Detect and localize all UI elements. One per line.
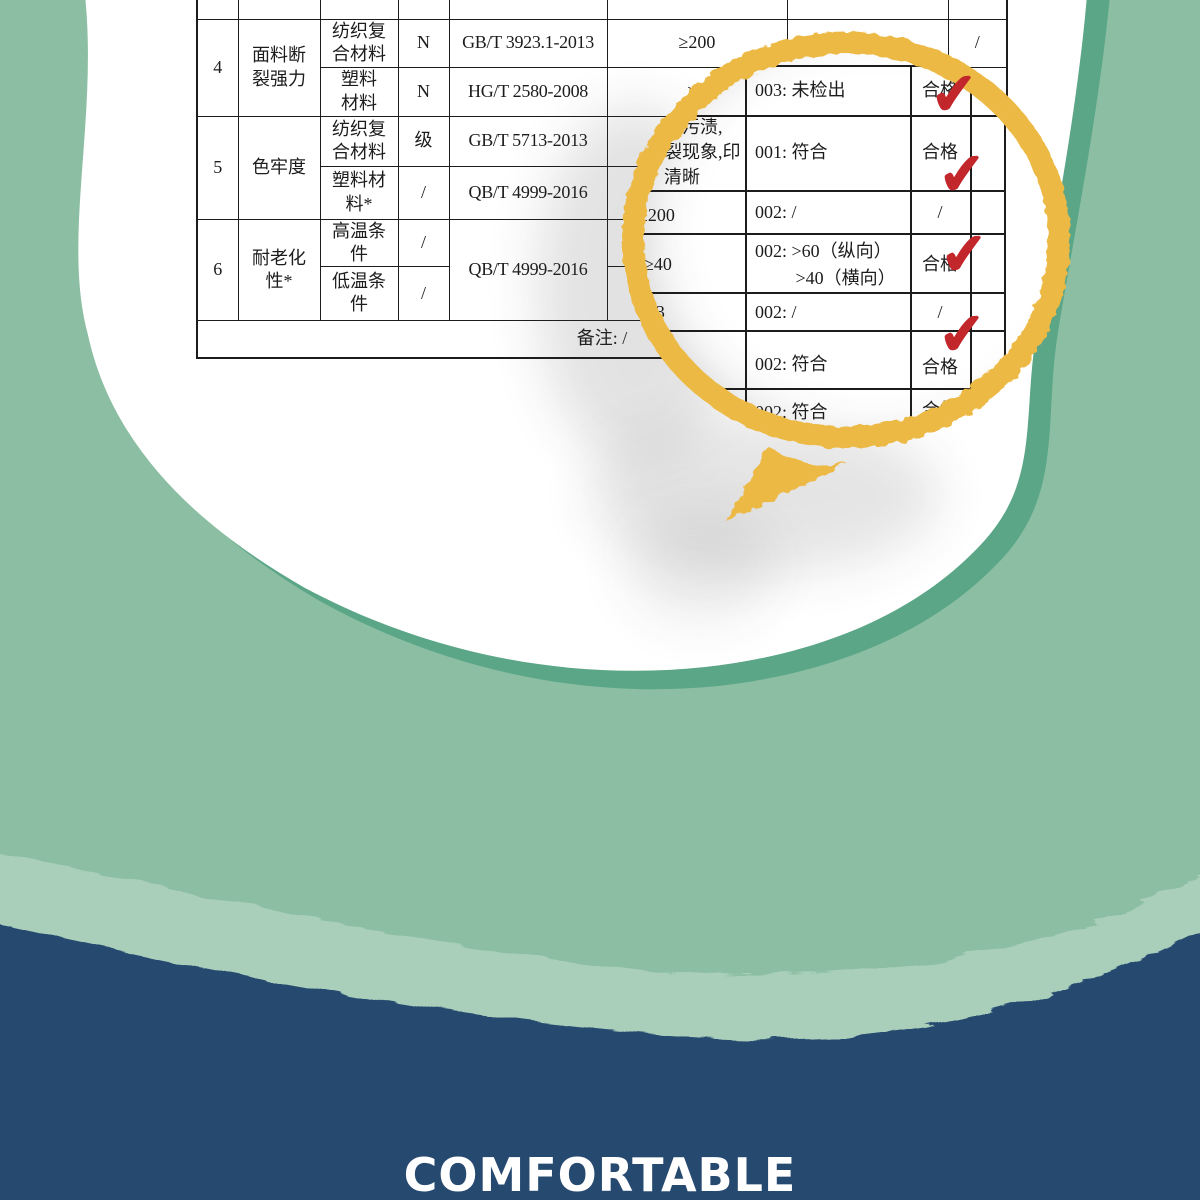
- zoom-cell-result: 002: 符合: [755, 352, 920, 377]
- zoom-cell-requirement: 或水: [686, 395, 722, 420]
- cell-index: 6: [197, 219, 238, 320]
- cell-requirement-partial: 花清晰: [607, 0, 787, 19]
- promo-canvas: 花清晰 4 面料断 裂强力 纺织复 合材料 N GB/T 3923.1-2013…: [0, 0, 1200, 1200]
- zoom-cell-result: 002: 符合: [755, 400, 920, 425]
- zoom-cell-conclusion: 合格: [911, 398, 969, 423]
- cell-standard: QB/T 4999-2016: [449, 166, 607, 219]
- cell-sub-item: 塑料材 料*: [320, 166, 398, 219]
- cell-sub-item: 纺织复 合材料: [320, 19, 398, 67]
- magnifier-content: 无污渍, 裂现象,印 清晰 ≥200 ≥40 ≥3 色 或水 003: 未检出 …: [633, 43, 1059, 437]
- zoom-cell-requirement: ≥3: [646, 300, 665, 325]
- cell-sub-item: 塑料 材料: [320, 67, 398, 116]
- cell-standard: GB/T 3923.1-2013: [449, 19, 607, 67]
- magnifier-lens: 无污渍, 裂现象,印 清晰 ≥200 ≥40 ≥3 色 或水 003: 未检出 …: [633, 43, 1059, 437]
- cell-unit: /: [398, 166, 449, 219]
- zoom-cell-result: 002: >60（纵向） >40（横向）: [755, 238, 920, 292]
- cell-standard: HG/T 2580-2008: [449, 67, 607, 116]
- zoom-cell-conclusion: 合格: [911, 140, 969, 165]
- cell-index: 4: [197, 19, 238, 116]
- cell-unit: N: [398, 19, 449, 67]
- zoom-cell-requirement: 无污渍, 裂现象,印 清晰: [664, 115, 749, 190]
- zoom-cell-conclusion: 合格: [911, 252, 969, 277]
- zoom-cell-result: 002: /: [755, 300, 920, 325]
- cell-item: 色牢度: [238, 116, 320, 219]
- zoom-cell-conclusion: /: [911, 300, 969, 325]
- table-row: 花清晰: [197, 0, 1007, 19]
- cell-sub-item: 高温条 件: [320, 219, 398, 266]
- cell-unit: N: [398, 67, 449, 116]
- zoom-cell-conclusion: /: [911, 200, 969, 225]
- zoom-cell-result: 001: 符合: [755, 140, 920, 165]
- cell-unit: 级: [398, 116, 449, 166]
- zoom-cell-conclusion: 合格: [911, 78, 969, 103]
- cell-sub-item: 纺织复 合材料: [320, 116, 398, 166]
- cell-standard: GB/T 5713-2013: [449, 116, 607, 166]
- cell-standard: QB/T 4999-2016: [449, 219, 607, 320]
- brand-watermark: COMFORTABLE: [0, 1148, 1200, 1200]
- cell-index: 5: [197, 116, 238, 219]
- cell-item: 耐老化 性*: [238, 219, 320, 320]
- zoom-cell-result: 003: 未检出: [755, 78, 920, 103]
- zoom-cell-requirement: ≥200: [638, 203, 675, 228]
- zoom-cell-requirement: 色: [656, 352, 674, 377]
- speech-tail-icon: [726, 446, 848, 521]
- zoom-cell-requirement: ≥40: [644, 252, 672, 277]
- cell-sub-item: 低温条 件: [320, 266, 398, 320]
- zoom-cell-result: 002: /: [755, 200, 920, 225]
- cell-item: 面料断 裂强力: [238, 19, 320, 116]
- cell-unit: /: [398, 266, 449, 320]
- zoom-cell-conclusion: 合格: [911, 355, 969, 380]
- cell-unit: /: [398, 219, 449, 266]
